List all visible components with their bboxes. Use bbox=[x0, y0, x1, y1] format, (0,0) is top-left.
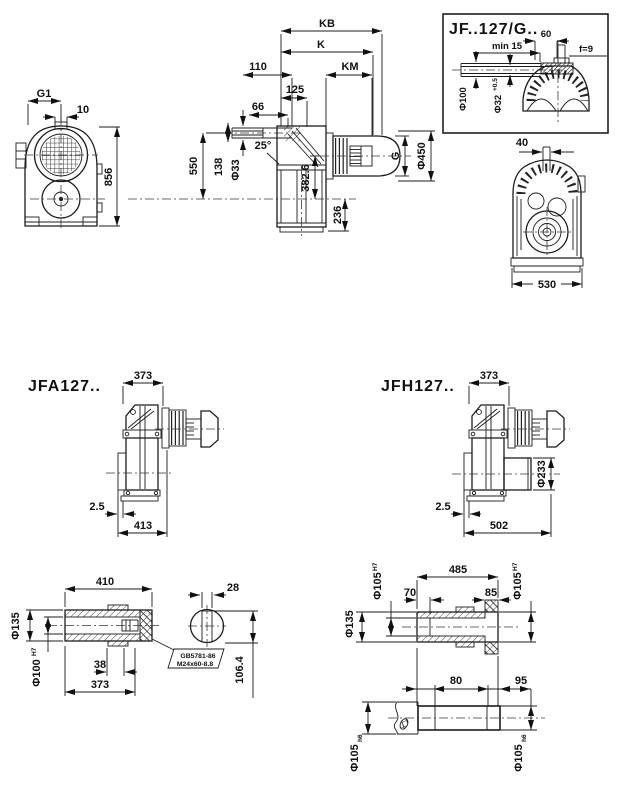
hollow-shaft-detail: 410 Φ135 Φ100 H7 38 373 28 106.4 bbox=[10, 576, 258, 698]
dim-min15: min 15 bbox=[492, 41, 523, 52]
inset-geometry bbox=[452, 40, 589, 122]
dim-60: 60 bbox=[541, 29, 552, 40]
dim-km: KM bbox=[341, 61, 358, 73]
dim-dia100: Φ100 bbox=[31, 659, 43, 686]
dim-kb: KB bbox=[319, 18, 335, 30]
technical-drawing: G1 10 856 bbox=[0, 0, 619, 793]
dim-f9: f=9 bbox=[579, 44, 593, 55]
dim-106-4: 106.4 bbox=[234, 655, 246, 683]
solid-shaft-dimensions: 80 95 Φ105 h6 Φ105 h6 bbox=[349, 675, 537, 772]
bolt-callout-line2: M24x60-8.8 bbox=[177, 661, 213, 668]
front-view: G1 10 856 bbox=[16, 88, 120, 231]
inset-title: JF..127/G.. bbox=[449, 21, 538, 38]
dim-dia105-h6-right: Φ105 bbox=[513, 744, 525, 771]
dim-g1: G1 bbox=[37, 88, 52, 100]
plug-shaft-dimensions: 485 70 85 Φ135 Φ105 H7 Φ105 H7 bbox=[344, 562, 536, 642]
dim-dia105-left: Φ105 bbox=[372, 572, 384, 599]
dim-k: K bbox=[317, 39, 325, 51]
dim-410: 410 bbox=[96, 576, 114, 588]
dim-80: 80 bbox=[450, 675, 462, 687]
dim-jfh-2-5: 2.5 bbox=[435, 501, 450, 513]
gear-unit-dimension-sheet: G1 10 856 bbox=[0, 0, 619, 793]
dim-dia105-right: Φ105 bbox=[512, 572, 524, 599]
dim-dia135: Φ135 bbox=[10, 612, 22, 639]
dim-jfa-413: 413 bbox=[134, 520, 152, 532]
dim-angle-25: 25° bbox=[255, 140, 272, 152]
dim-10: 10 bbox=[77, 104, 89, 116]
dim-jfh-373: 373 bbox=[480, 370, 498, 382]
front-view-geometry bbox=[16, 117, 105, 231]
jfa-title: JFA127.. bbox=[28, 378, 101, 395]
dim-dia105-h6-left-tolerance: h6 bbox=[357, 734, 364, 742]
dim-dia32: Φ32 bbox=[493, 95, 504, 113]
solid-shaft-geometry bbox=[388, 648, 545, 734]
dim-dia32-tolerance: +0.5 bbox=[492, 78, 499, 91]
hollow-shaft-geometry bbox=[48, 605, 226, 647]
dim-jfa-2-5: 2.5 bbox=[89, 501, 104, 513]
dim-40: 40 bbox=[516, 137, 528, 149]
dim-dia100: Φ100 bbox=[458, 87, 469, 111]
dim-66: 66 bbox=[252, 101, 264, 113]
dim-138: 138 bbox=[213, 158, 225, 176]
plug-shaft-detail: 485 70 85 Φ135 Φ105 H7 Φ105 H7 bbox=[344, 562, 536, 654]
dim-dia105-h6-right-tolerance: h6 bbox=[521, 734, 528, 742]
dim-38: 38 bbox=[94, 659, 106, 671]
jfa-dimensions: 373 2.5 413 bbox=[89, 370, 167, 537]
dim-236: 236 bbox=[332, 206, 344, 224]
dim-hs-373: 373 bbox=[91, 679, 109, 691]
jfa-geometry bbox=[106, 405, 224, 501]
rear-view: 40 530 bbox=[511, 137, 585, 291]
dim-dia450: Φ450 bbox=[416, 142, 428, 169]
dim-dia100-tolerance: H7 bbox=[31, 647, 38, 656]
side-view: KB K KM 110 125 66 550 138 Φ33 25° 382.6 bbox=[128, 18, 435, 236]
dim-85: 85 bbox=[485, 587, 497, 599]
dim-550: 550 bbox=[188, 157, 200, 175]
dim-382-6: 382.6 bbox=[300, 164, 312, 192]
dim-530: 530 bbox=[538, 279, 556, 291]
dim-dia105-left-tolerance: H7 bbox=[372, 562, 379, 571]
plug-shaft-geometry bbox=[402, 600, 520, 654]
dim-jfa-373: 373 bbox=[134, 370, 152, 382]
dim-95: 95 bbox=[515, 675, 527, 687]
inset-view: JF..127/G.. 60 min 15 f=9 Φ100 bbox=[443, 14, 608, 133]
dim-dia105-h6-left: Φ105 bbox=[349, 744, 361, 771]
dim-485: 485 bbox=[449, 564, 467, 576]
dim-dia105-right-tolerance: H7 bbox=[512, 562, 519, 571]
dim-dia233: Φ233 bbox=[536, 460, 548, 487]
jfa-view: JFA127.. 373 2.5 bbox=[28, 370, 224, 537]
dim-70: 70 bbox=[404, 587, 416, 599]
jfh-title: JFH127.. bbox=[381, 378, 455, 395]
dim-dia33: Φ33 bbox=[230, 159, 242, 180]
dim-g: G bbox=[390, 152, 402, 161]
dim-125: 125 bbox=[286, 84, 304, 96]
dim-856: 856 bbox=[103, 168, 115, 186]
jfh-dimensions: 373 Φ233 2.5 502 bbox=[435, 370, 555, 537]
rear-view-geometry bbox=[511, 147, 585, 272]
jfh-view: JFH127.. 373 bbox=[381, 370, 570, 537]
dim-ps-dia135: Φ135 bbox=[344, 610, 356, 637]
dim-28: 28 bbox=[227, 582, 239, 594]
dim-110: 110 bbox=[249, 61, 267, 73]
jfh-geometry bbox=[452, 405, 570, 501]
dim-502: 502 bbox=[490, 520, 508, 532]
solid-shaft-detail: 80 95 Φ105 h6 Φ105 h6 bbox=[349, 648, 545, 772]
bolt-callout-line1: GB5781-86 bbox=[180, 653, 215, 660]
